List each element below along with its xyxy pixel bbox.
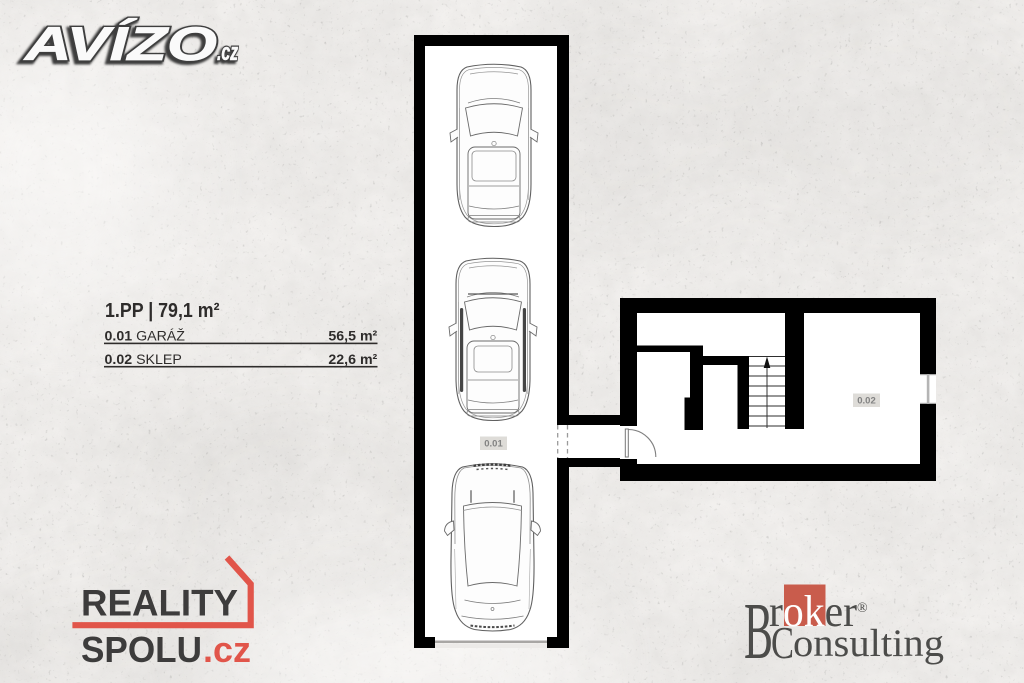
svg-text:onsulting: onsulting bbox=[793, 622, 944, 665]
svg-text:C: C bbox=[771, 617, 794, 668]
svg-text:®: ® bbox=[857, 601, 868, 616]
